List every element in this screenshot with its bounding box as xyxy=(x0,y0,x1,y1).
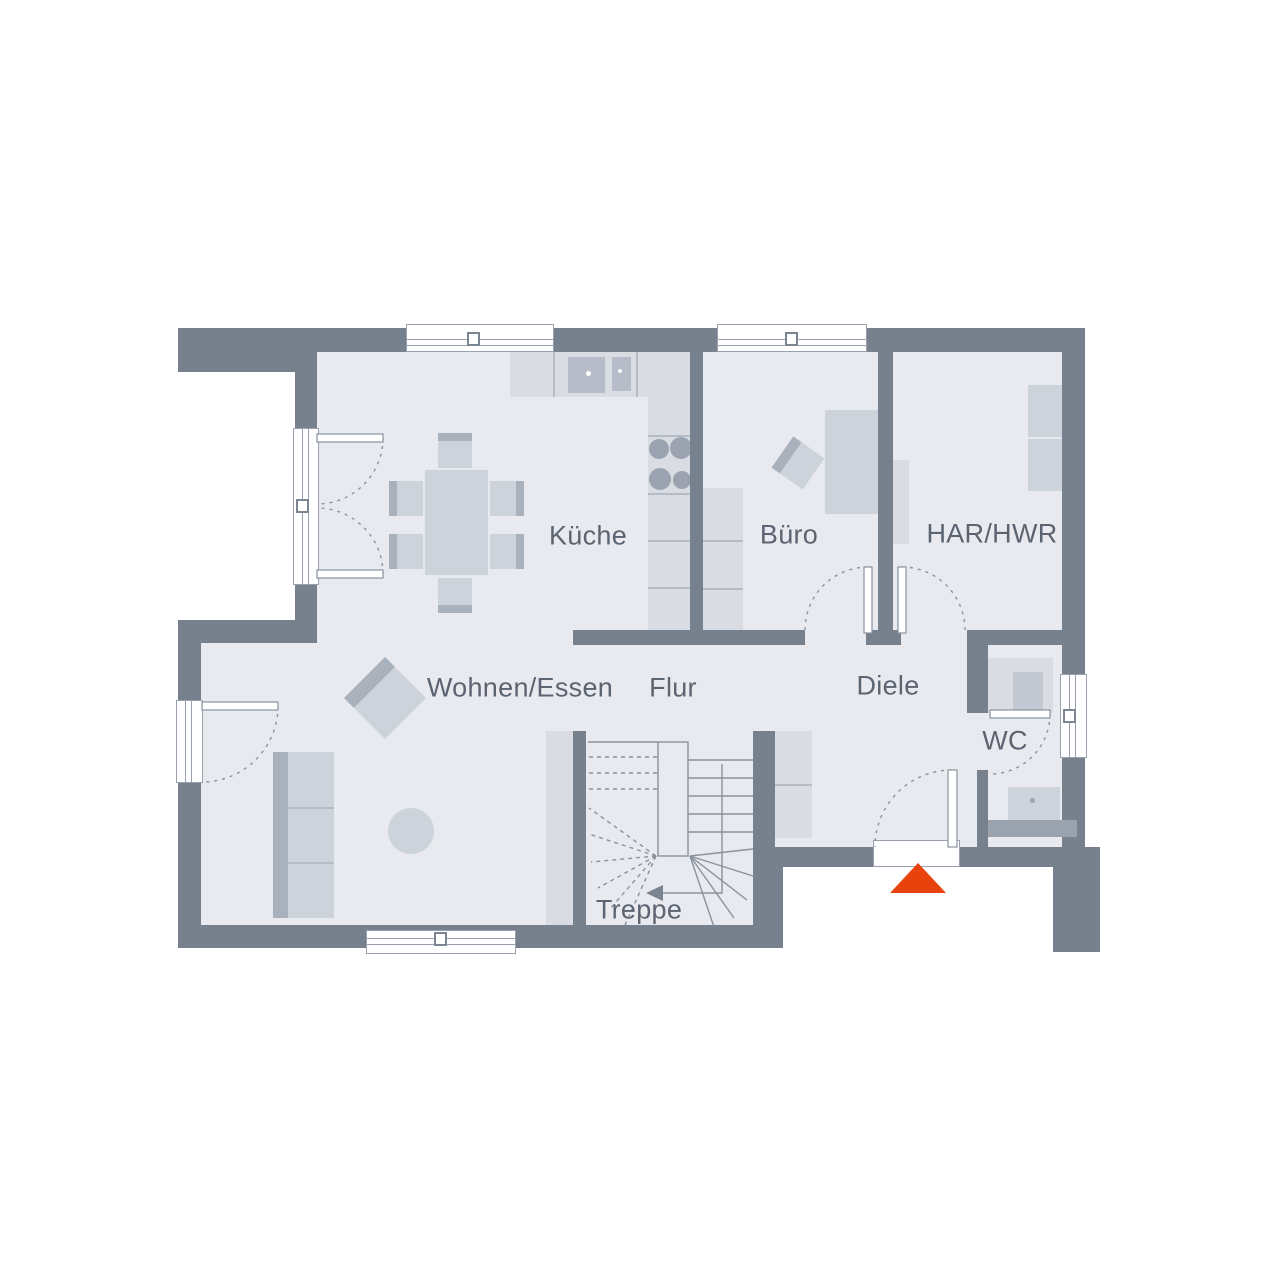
door-arc xyxy=(902,567,965,630)
floor-plan: Küche Büro HAR/HWR Wohnen/Essen Flur Die… xyxy=(0,0,1280,1280)
room-label-har-hwr: HAR/HWR xyxy=(926,521,1057,548)
door-arc xyxy=(317,438,383,504)
room-label-diele: Diele xyxy=(856,673,919,700)
plan-line-overlay xyxy=(0,0,1280,1280)
door-leaf xyxy=(317,434,383,442)
door-arc xyxy=(875,770,952,847)
door-leaf xyxy=(948,770,957,847)
door-leaf xyxy=(202,702,278,710)
room-label-wohnen-essen: Wohnen/Essen xyxy=(427,675,613,702)
entrance-marker-icon xyxy=(890,863,946,893)
room-label-wc: WC xyxy=(982,728,1028,755)
door-leaf xyxy=(990,710,1050,718)
room-label-treppe: Treppe xyxy=(596,897,682,924)
door-arc xyxy=(317,508,383,574)
room-label-kueche: Küche xyxy=(549,523,627,550)
room-label-buero: Büro xyxy=(760,522,818,549)
door-leaf xyxy=(864,567,872,633)
door-leaf xyxy=(317,570,383,578)
door-arc xyxy=(202,706,278,782)
door-arc xyxy=(805,567,868,630)
door-leaf xyxy=(898,567,906,633)
room-label-flur: Flur xyxy=(649,675,697,702)
